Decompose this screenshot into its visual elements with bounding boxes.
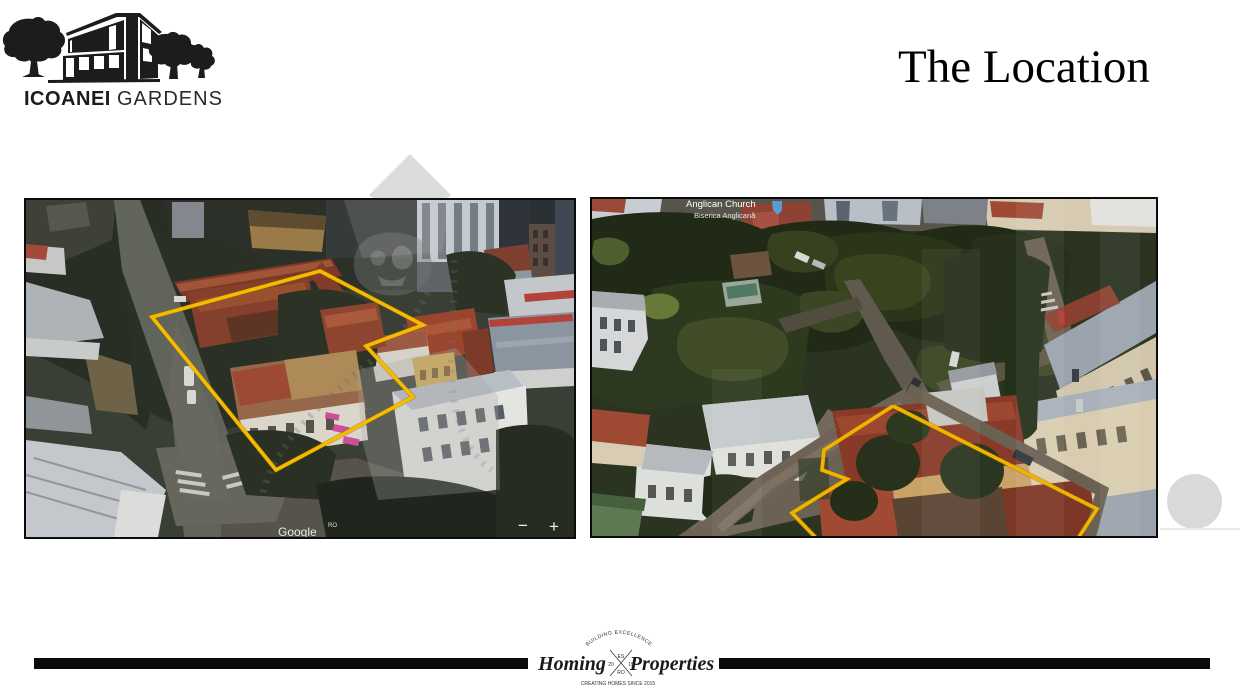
svg-text:ES: ES <box>618 654 625 660</box>
svg-text:Biserica Anglicană: Biserica Anglicană <box>694 211 756 220</box>
svg-text:ICOANEI: ICOANEI <box>24 88 111 110</box>
svg-text:Properties: Properties <box>629 653 715 675</box>
svg-text:Anglican Church: Anglican Church <box>686 199 756 210</box>
svg-text:CREATING HOMES SINCE 2015: CREATING HOMES SINCE 2015 <box>581 681 656 687</box>
svg-text:RO: RO <box>617 670 625 676</box>
svg-text:GARDENS: GARDENS <box>117 88 223 110</box>
svg-text:−: − <box>518 516 528 535</box>
svg-text:Google: Google <box>278 525 317 539</box>
svg-text:15: 15 <box>628 662 634 668</box>
svg-text:20: 20 <box>608 662 614 668</box>
svg-text:RO: RO <box>328 523 337 529</box>
svg-text:Homing: Homing <box>537 653 606 675</box>
svg-text:+: + <box>549 517 559 536</box>
svg-text:BUILDING EXCELLENCE: BUILDING EXCELLENCE <box>585 630 653 648</box>
